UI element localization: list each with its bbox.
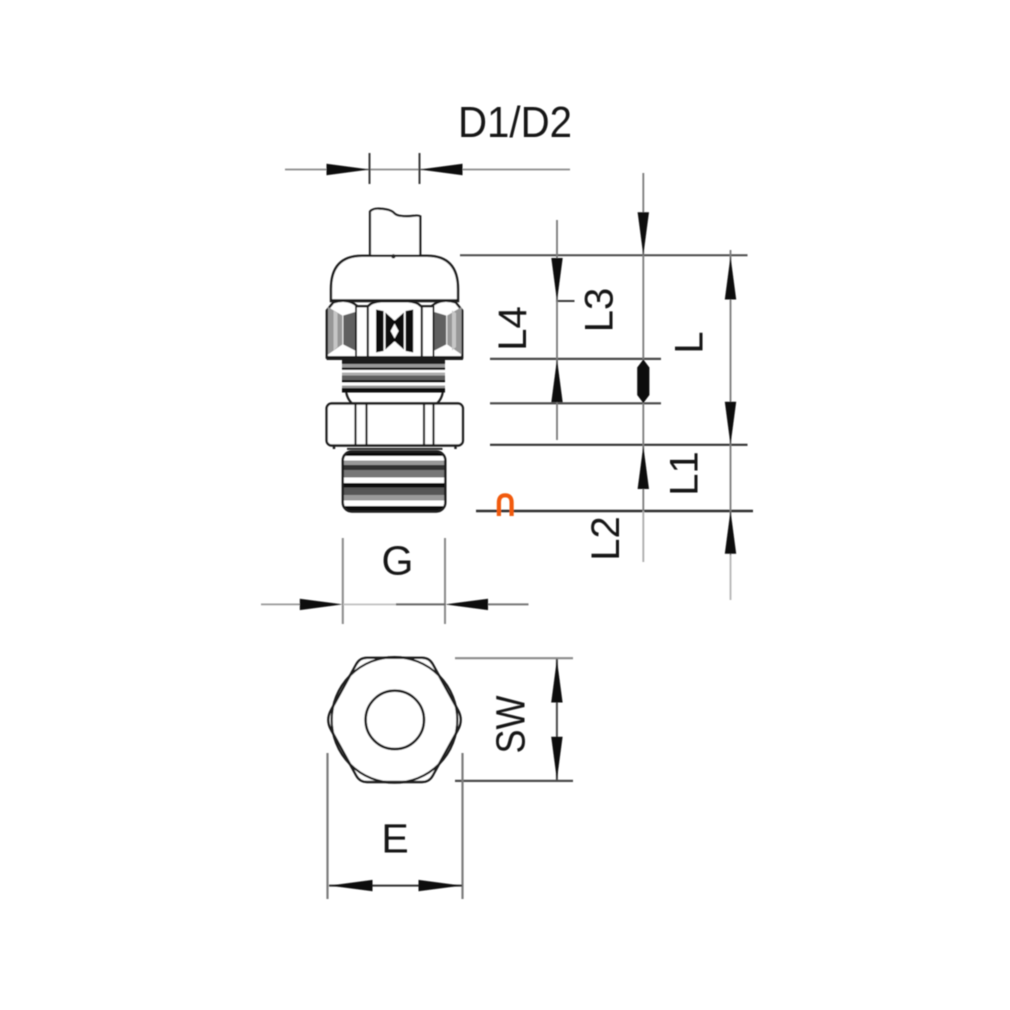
svg-text:G: G (382, 538, 414, 584)
svg-text:L: L (668, 331, 712, 353)
svg-text:L4: L4 (491, 306, 535, 351)
svg-text:L1: L1 (663, 451, 707, 496)
svg-text:L2: L2 (584, 516, 628, 561)
svg-text:D1/D2: D1/D2 (458, 98, 572, 147)
svg-text:L3: L3 (578, 288, 622, 333)
svg-text:SW: SW (488, 695, 534, 753)
svg-text:E: E (381, 816, 408, 862)
